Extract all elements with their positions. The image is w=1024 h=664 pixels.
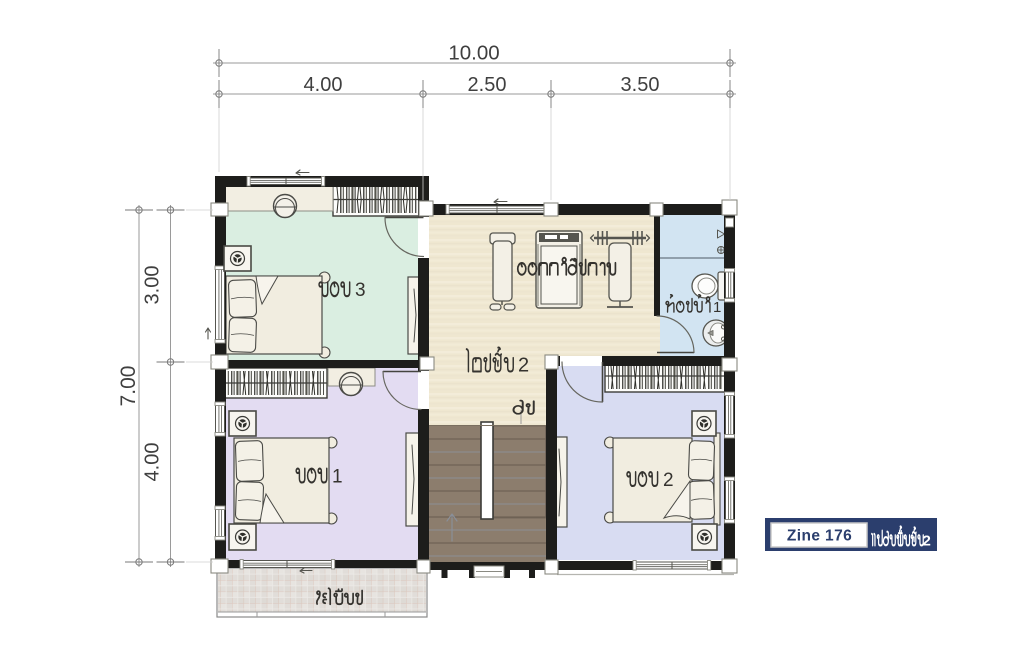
svg-text:4.00: 4.00 (304, 74, 343, 96)
svg-text:2: 2 (923, 533, 931, 550)
svg-text:1: 1 (713, 299, 721, 316)
svg-text:4.00: 4.00 (142, 443, 164, 482)
svg-text:2: 2 (663, 470, 674, 491)
svg-text:2: 2 (518, 355, 529, 377)
svg-text:1: 1 (332, 467, 343, 488)
svg-text:7.00: 7.00 (117, 366, 140, 407)
svg-text:Zine 176: Zine 176 (787, 528, 852, 545)
svg-text:10.00: 10.00 (448, 42, 499, 65)
svg-text:3.00: 3.00 (142, 266, 164, 305)
svg-text:3.50: 3.50 (621, 74, 660, 96)
svg-text:3: 3 (355, 280, 366, 301)
svg-text:2.50: 2.50 (468, 74, 507, 96)
